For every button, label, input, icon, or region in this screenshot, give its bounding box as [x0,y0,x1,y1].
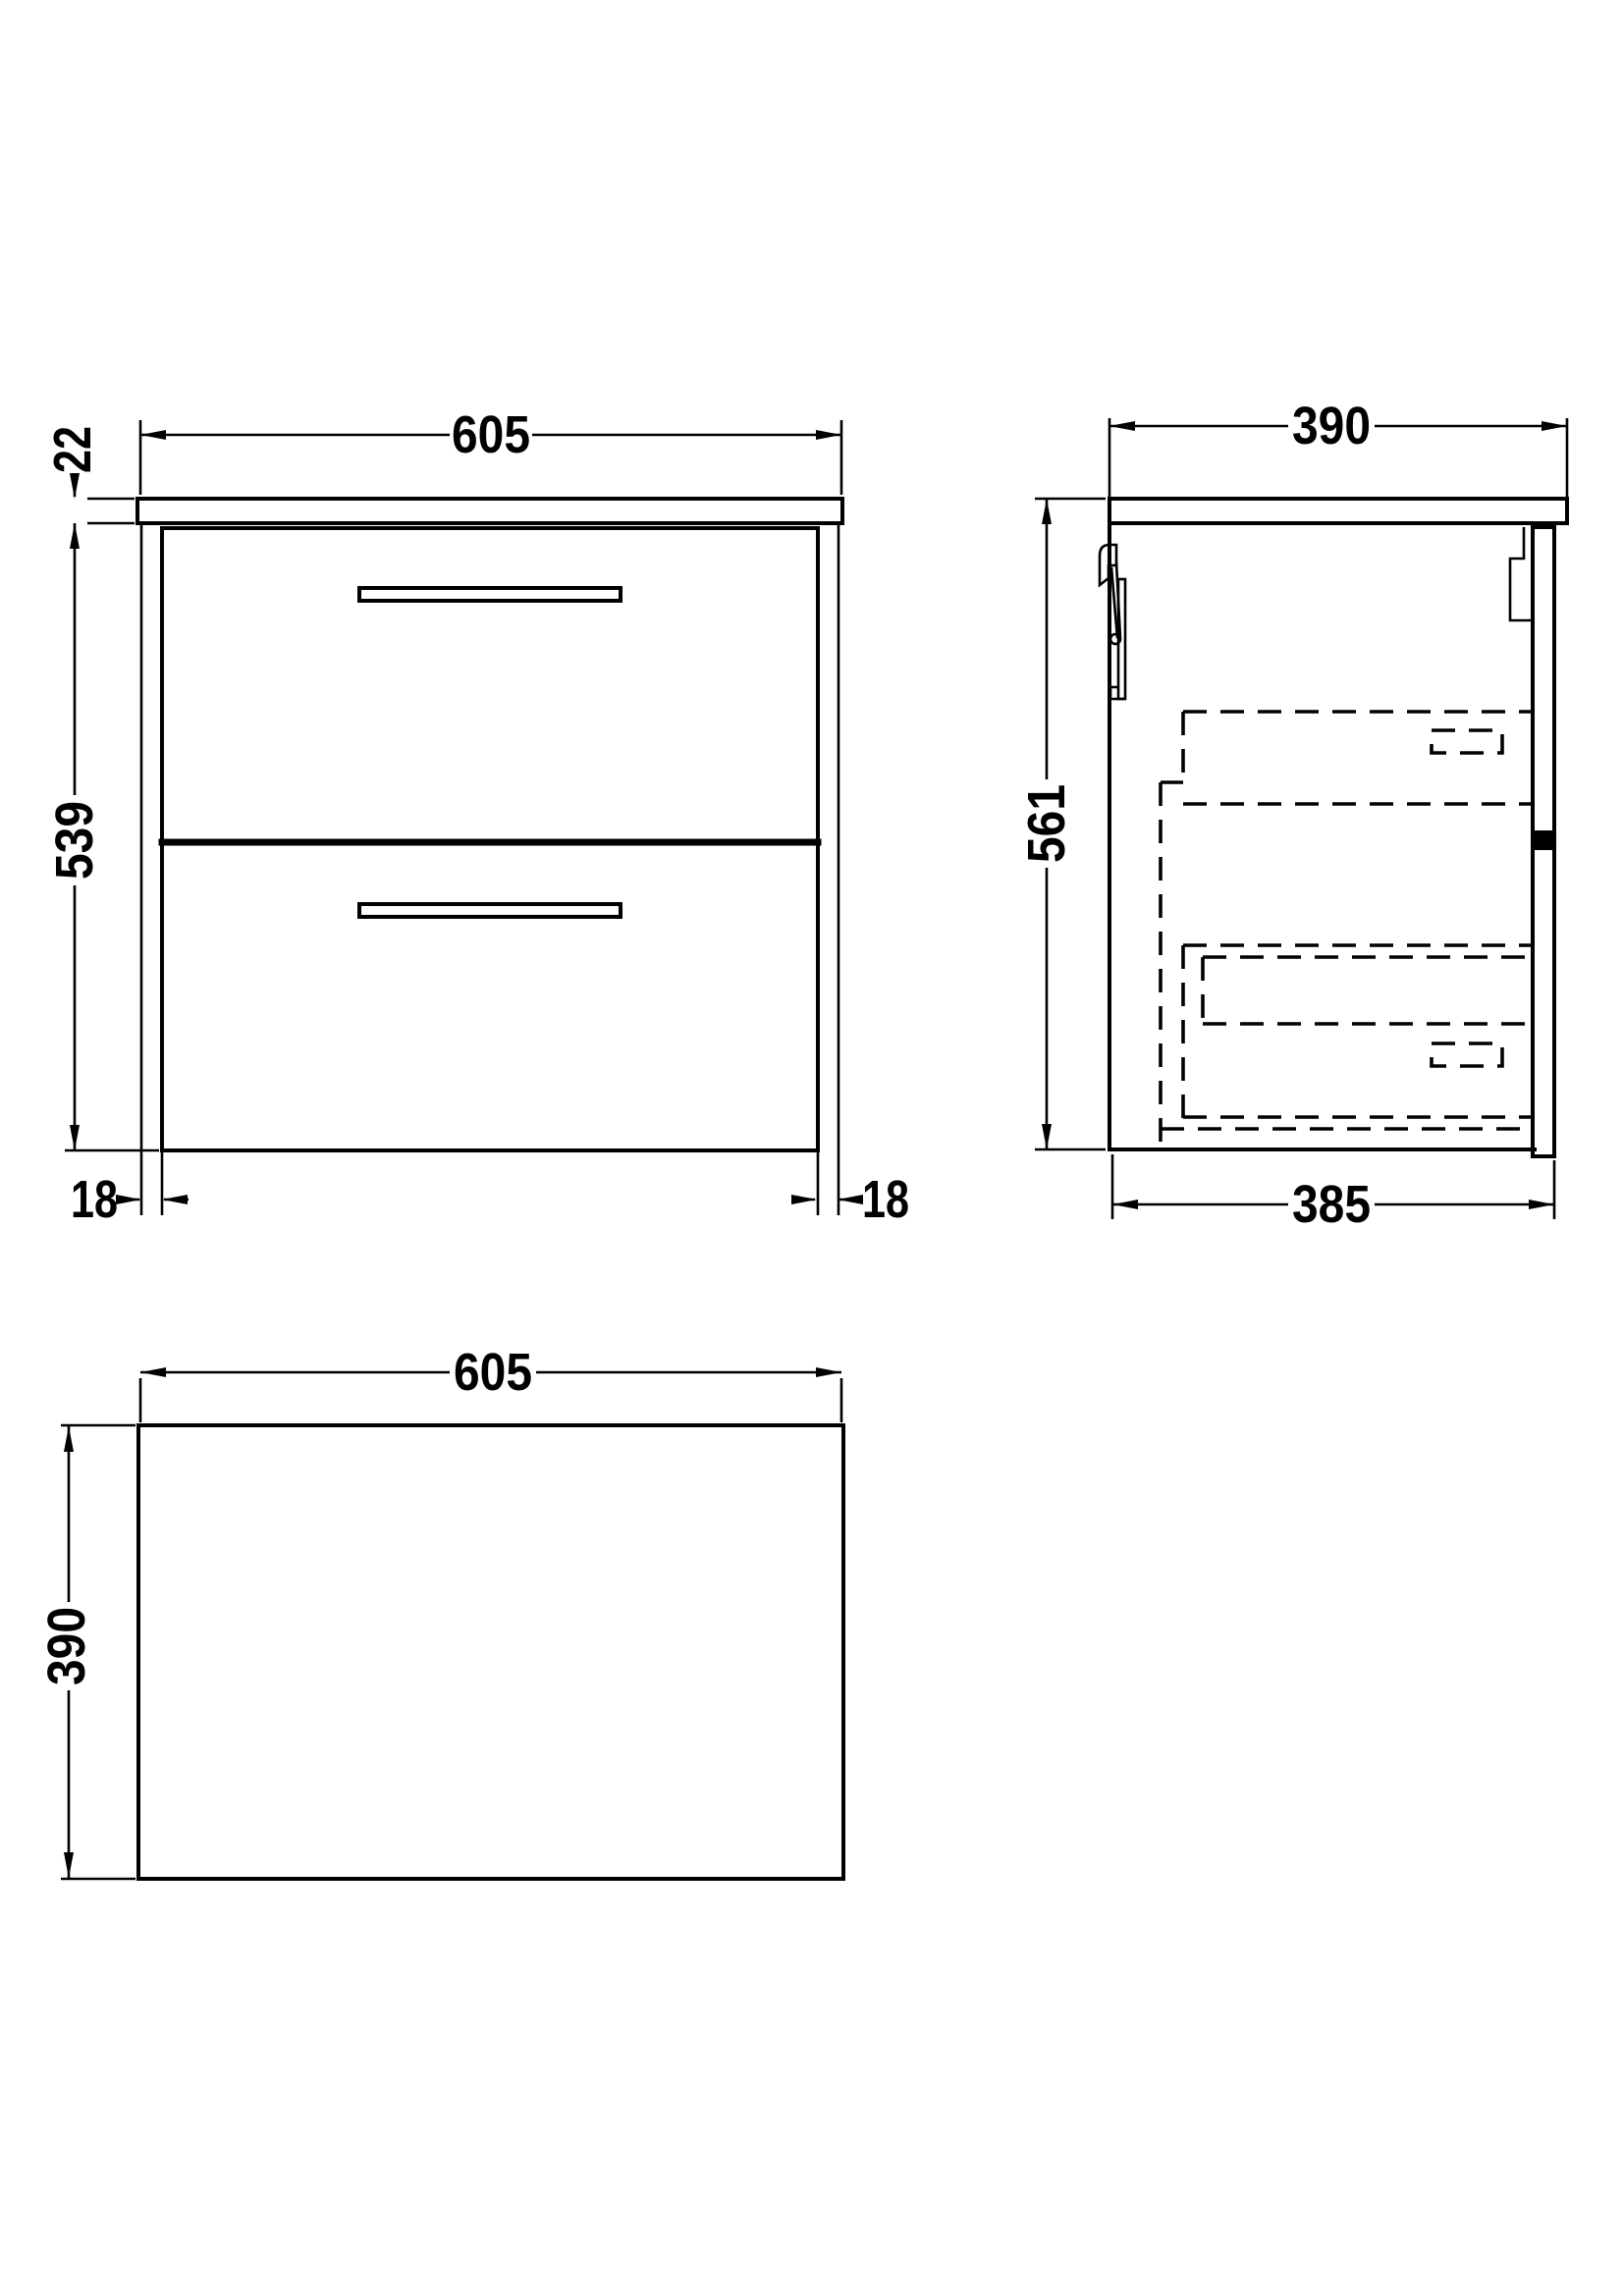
arrowheads [70,473,80,499]
side-depth-label: 390 [1292,397,1371,455]
front-width-label: 605 [452,405,530,464]
front-left-overhang-label: 18 [71,1170,118,1229]
front-worktop-thickness-dimension: 22 [43,426,135,523]
side-top-drawer-bracket [1510,527,1533,620]
plan-width-label: 605 [454,1343,532,1402]
side-bottom-drawer-front [1533,848,1554,1156]
front-right-overhang-dimension: 18 [791,525,909,1229]
plan-depth-label: 390 [37,1607,96,1685]
arrowheads [791,1195,863,1204]
plan-depth-dimension: 390 [37,1425,135,1879]
arrowheads [116,1195,188,1204]
side-worktop [1109,499,1567,523]
side-depth-dimension: 390 [1109,397,1567,497]
front-worktop-thickness-label: 22 [43,426,102,473]
front-worktop [137,499,842,523]
plan-view: 605 390 [37,1343,843,1879]
front-right-overhang-label: 18 [862,1170,909,1229]
side-view: 390 561 385 [1017,397,1567,1234]
bottom-drawer-box-hidden [1161,945,1533,1129]
side-top-drawer-front [1533,527,1554,832]
front-bottom-drawer-handle [359,904,621,917]
top-drawer-handle-hidden [1432,730,1502,753]
technical-drawing-canvas: 605 22 539 18 18 [0,0,1623,2296]
extension-lines [818,525,839,1215]
bottom-drawer-handle-hidden [1432,1043,1502,1066]
side-body-depth-dimension: 385 [1112,1154,1554,1234]
front-top-drawer-handle [359,588,621,601]
hidden-drawer-details [1161,712,1533,1149]
wall-hanging-bracket [1100,545,1125,699]
plan-width-dimension: 605 [140,1343,841,1422]
top-drawer-box-hidden [1161,712,1533,1149]
front-view: 605 22 539 18 18 [43,405,909,1229]
side-height-label: 561 [1017,784,1076,863]
side-body-depth-label: 385 [1292,1175,1371,1234]
extension-lines [141,525,162,1215]
front-width-dimension: 605 [140,405,841,495]
vanity-unit-dimension-drawing: 605 22 539 18 18 [0,0,1623,2296]
extension-lines [87,499,135,523]
side-drawer-front-joint [1531,830,1556,848]
front-body-height-label: 539 [45,801,104,880]
side-height-dimension: 561 [1017,499,1106,1149]
plan-worktop-outline [138,1425,843,1879]
